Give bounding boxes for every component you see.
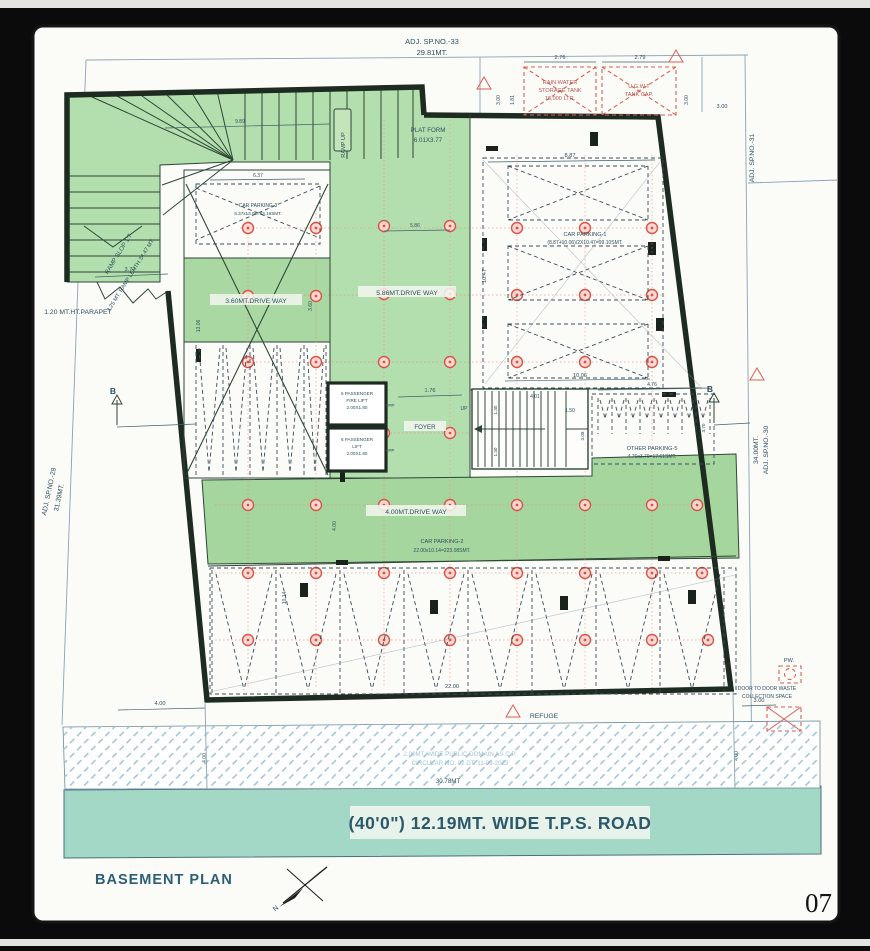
ugwt-label-1: U.G.W.T [628,84,650,90]
p3-dim-637: 6.37 [253,173,263,179]
fire-lift-label-3: 2.00X1.80 [347,405,368,410]
road-dim: 30.78MT [436,778,461,785]
tank-dim-300-left: 3.00 [496,95,502,105]
p3-dim-1306: 13.06 [196,320,202,333]
p3-calc: 6.37x13.06=83.19SMT. [234,211,281,216]
foyer-label: FOYER [414,424,436,431]
driveway-360-dim: 3.60 [308,301,314,311]
tank-dim-279: 2.79 [635,55,646,61]
basement-plan-drawing: RAMP SLOP 1:7 3.25 MT. RAMP LENTH 34.47 … [0,0,870,951]
driveway-360-label: 3.60MT.DRIVE WAY [225,298,287,305]
road-label: (40'0") 12.19MT. WIDE T.P.S. ROAD [349,813,652,833]
tank-dim-276: 2.76 [555,55,566,61]
p5-calc: 4.76x3.70=17.61SMT. [628,454,677,460]
fire-lift-shaft [328,383,386,425]
page-number: 07 [805,888,832,918]
top-strip [0,0,870,8]
p2-name: CAR PARKING-2 [420,539,463,545]
parapet-label: 1.20 MT.HT.PARAPET [44,309,111,316]
p2-dim-2200: 22.00 [445,684,459,690]
fire-lift-tag: FPP [386,403,395,408]
rain-tank-label-2: STORAGE TANK [538,88,581,94]
adj-sp-30-dim: 34.00MT. [753,436,760,464]
tank-dim-300-side: 3.00 [717,104,728,110]
p5-dim-370: 3.70 [701,423,706,432]
dim-300-waste: 3.00 [754,698,765,704]
section-b-right: B [707,384,713,394]
public-domain-note-1: 2.00MT. WIDE PUBLIC DOMAIN AS C.P. [403,751,516,758]
p5-dim-476: 4.76 [647,382,657,388]
dim-308: 3.08 [580,431,585,440]
dim-176: 1.76 [425,388,436,394]
p5-name: OTHER PARKING-5 [627,446,678,452]
p1-calc: (8.87+10.06)/2X10.47=99.10SMT. [547,240,622,246]
adj-sp-31: ADJ. SP.NO.-31 [749,133,756,182]
lift-label-3: 2.00X1.80 [347,451,368,456]
dim-400-left: 4.00 [202,753,208,763]
refuge-label: REFUGE [530,713,559,720]
dim-400-right: 4.00 [734,751,740,761]
rain-tank-label-1: RAIN WATER [543,80,578,86]
section-b-left: B [110,386,116,396]
platform-label-1: PLAT FORM [411,127,446,134]
dim-400-corner: 4.00 [155,701,166,707]
tank-dim-181: 1.81 [510,95,516,105]
lift-label-2: LIFT [352,444,362,449]
adj-sp-33: ADJ. SP.NO.-33 [405,37,459,46]
adj-sp-33-dim: 29.81MT. [417,48,448,57]
p1-dim-1006: 10.06 [573,373,587,379]
dim-150: 1.50 [565,408,575,414]
tank-dim-300-right: 3.00 [684,95,690,105]
driveway-586-label: 5.86MT.DRIVE WAY [376,290,438,297]
rain-tank-label-3: 18,000 LTR. [545,96,576,102]
waste-label-2: COLLECTION SPACE [742,694,793,700]
fire-lift-label-2: FIRE LIFT [346,398,367,403]
bottom-strip [0,939,870,946]
lift-tag: FPP [386,448,395,453]
driveway-586-dim: 5.86 [410,223,420,229]
driveway-400-dim: 4.00 [332,521,338,531]
p1-dim-1047: 10.47 [482,269,488,283]
parapet-dim: 3.77 [125,267,136,273]
p3-name: CAR PARKING-3 [239,203,278,209]
lift-label-1: 6 PASSENGER [341,437,374,442]
p1-dim-887: 8.87 [565,153,576,159]
plan-title: BASEMENT PLAN [95,872,233,888]
p1-name: CAR PARKING-1 [563,232,606,238]
p2-dim-1014: 10.14 [282,592,288,605]
ugwt-label-2: TANK CAP. [625,92,654,98]
dim-130a: 1.30 [493,405,498,414]
stair-up-label: UP [461,406,469,412]
ramp-up-label: RAMP UP [341,132,347,158]
adj-sp-30: ADJ. SP.NO.-30 [763,425,770,474]
waste-label-1: DOOR TO DOOR WASTE [738,686,797,692]
platform-label-2: 6.01X3.77 [414,137,443,144]
public-domain-note-2: CIRCULAR NO. 02 DT. 11-09-2023 [412,760,509,767]
dim-401: 4.01 [530,394,540,400]
dim-130b: 1.30 [493,447,498,456]
fire-lift-label-1: 6 PASSENGER [341,391,374,396]
passenger-lift-shaft [328,428,386,471]
ramp-run-dim: 9.89 [235,119,245,125]
driveway-400-label: 4.00MT.DRIVE WAY [385,509,447,516]
pw-label: PW. [784,658,795,664]
p2-calc: 22.00x10.14=223.08SMT. [413,548,470,554]
